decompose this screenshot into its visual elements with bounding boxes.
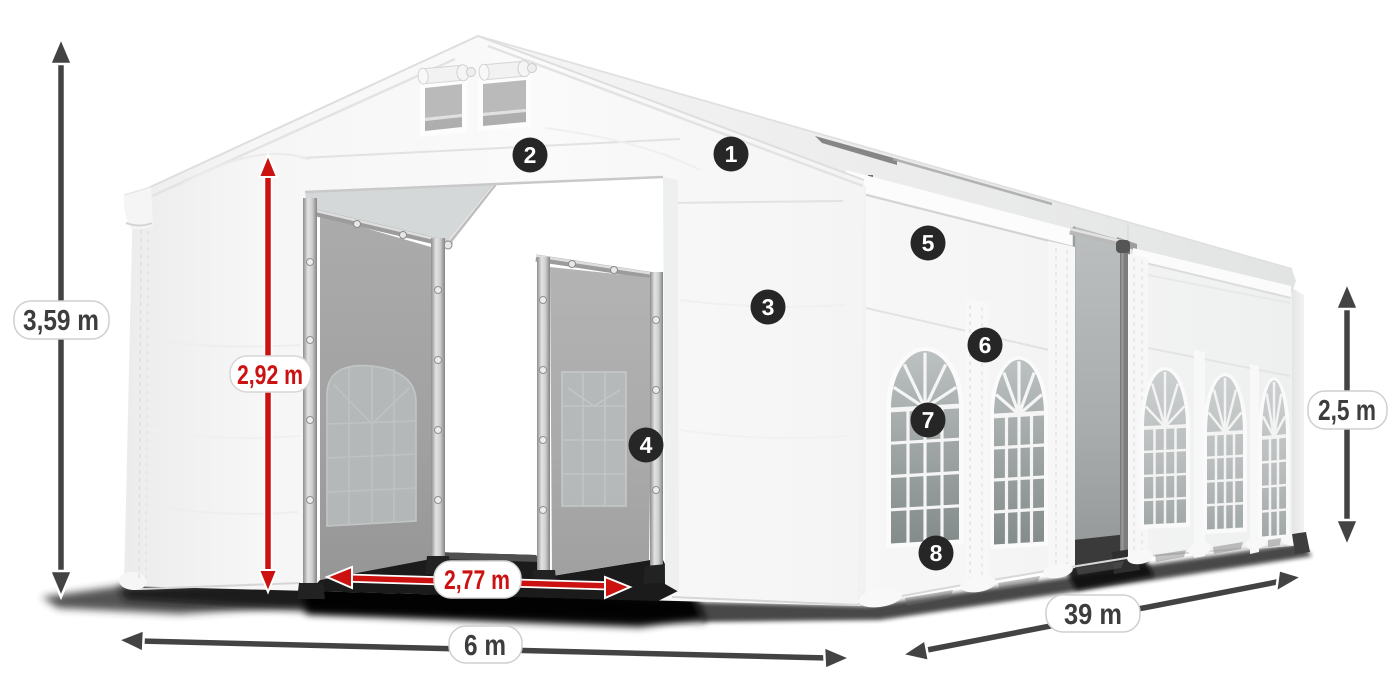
svg-text:2,77 m: 2,77 m: [444, 565, 510, 595]
svg-text:3: 3: [762, 294, 775, 320]
svg-text:1: 1: [725, 141, 738, 167]
svg-text:8: 8: [930, 540, 943, 566]
svg-text:2,5 m: 2,5 m: [1318, 395, 1376, 427]
svg-text:2,92 m: 2,92 m: [237, 360, 303, 390]
svg-text:3,59 m: 3,59 m: [23, 305, 99, 337]
svg-text:39 m: 39 m: [1064, 599, 1122, 631]
svg-text:6 m: 6 m: [464, 630, 506, 662]
svg-text:7: 7: [922, 407, 935, 433]
svg-text:2: 2: [524, 142, 537, 168]
svg-text:6: 6: [979, 332, 992, 358]
svg-text:4: 4: [640, 432, 653, 458]
svg-text:5: 5: [922, 230, 935, 256]
